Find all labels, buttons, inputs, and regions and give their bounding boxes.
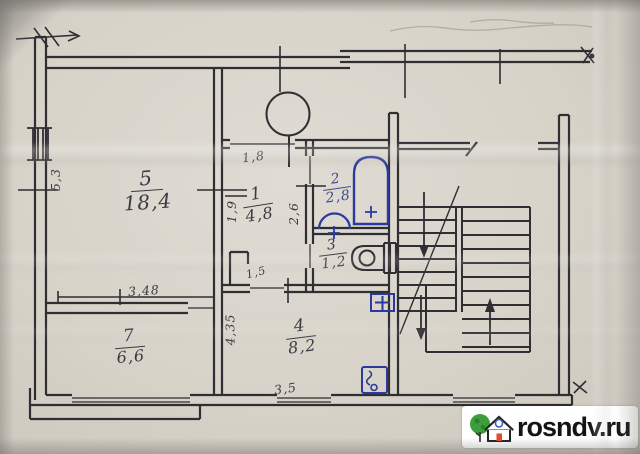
room-area: 6,6 [116,347,146,367]
room-label-kitchen: 4 8,2 [273,315,329,359]
watermark: rosndv.ru [462,406,638,448]
dim-hall-door: 1,8 [241,148,266,166]
room-label-bedroom: 7 6,6 [100,326,159,368]
floor-plan: 5 18,4 1 4,8 2 2,8 3 1,2 4 8,2 7 6,6 5,3… [0,0,640,454]
electric-stove-icon [362,367,387,393]
plus-box-icon [371,294,394,311]
dim-kitchen-width: 3,5 [273,379,298,397]
door-openings [188,144,310,308]
room-label-living: 5 18,4 [111,166,184,216]
toilet-icon [352,243,396,273]
room-label-bath: 2 2,8 [313,169,361,207]
plan-linework [0,0,640,454]
staircase [398,186,530,352]
room-area: 1,2 [321,253,348,272]
vent-shaft-icon [267,93,310,168]
balcony-window-icon [27,128,52,160]
dim-left-height: 5,3 [48,168,63,191]
dim-bedroom-width: 3,48 [128,282,161,299]
room-area: 18,4 [123,189,173,214]
house-logo-icon [469,408,515,446]
dim-hall-width: 1,9 [224,200,239,223]
sink-icon [319,213,350,239]
room-area: 8,2 [287,336,317,357]
room-area: 2,8 [325,187,352,206]
room-label-wc: 3 1,2 [311,236,355,273]
pencil-scribbles [390,20,592,31]
dimension-end-dot [590,54,595,59]
dim-hall-depth: 2,6 [286,202,301,225]
dim-kitchen-height: 4,35 [222,314,237,346]
windows [72,398,515,402]
watermark-text: rosndv.ru [517,412,631,443]
